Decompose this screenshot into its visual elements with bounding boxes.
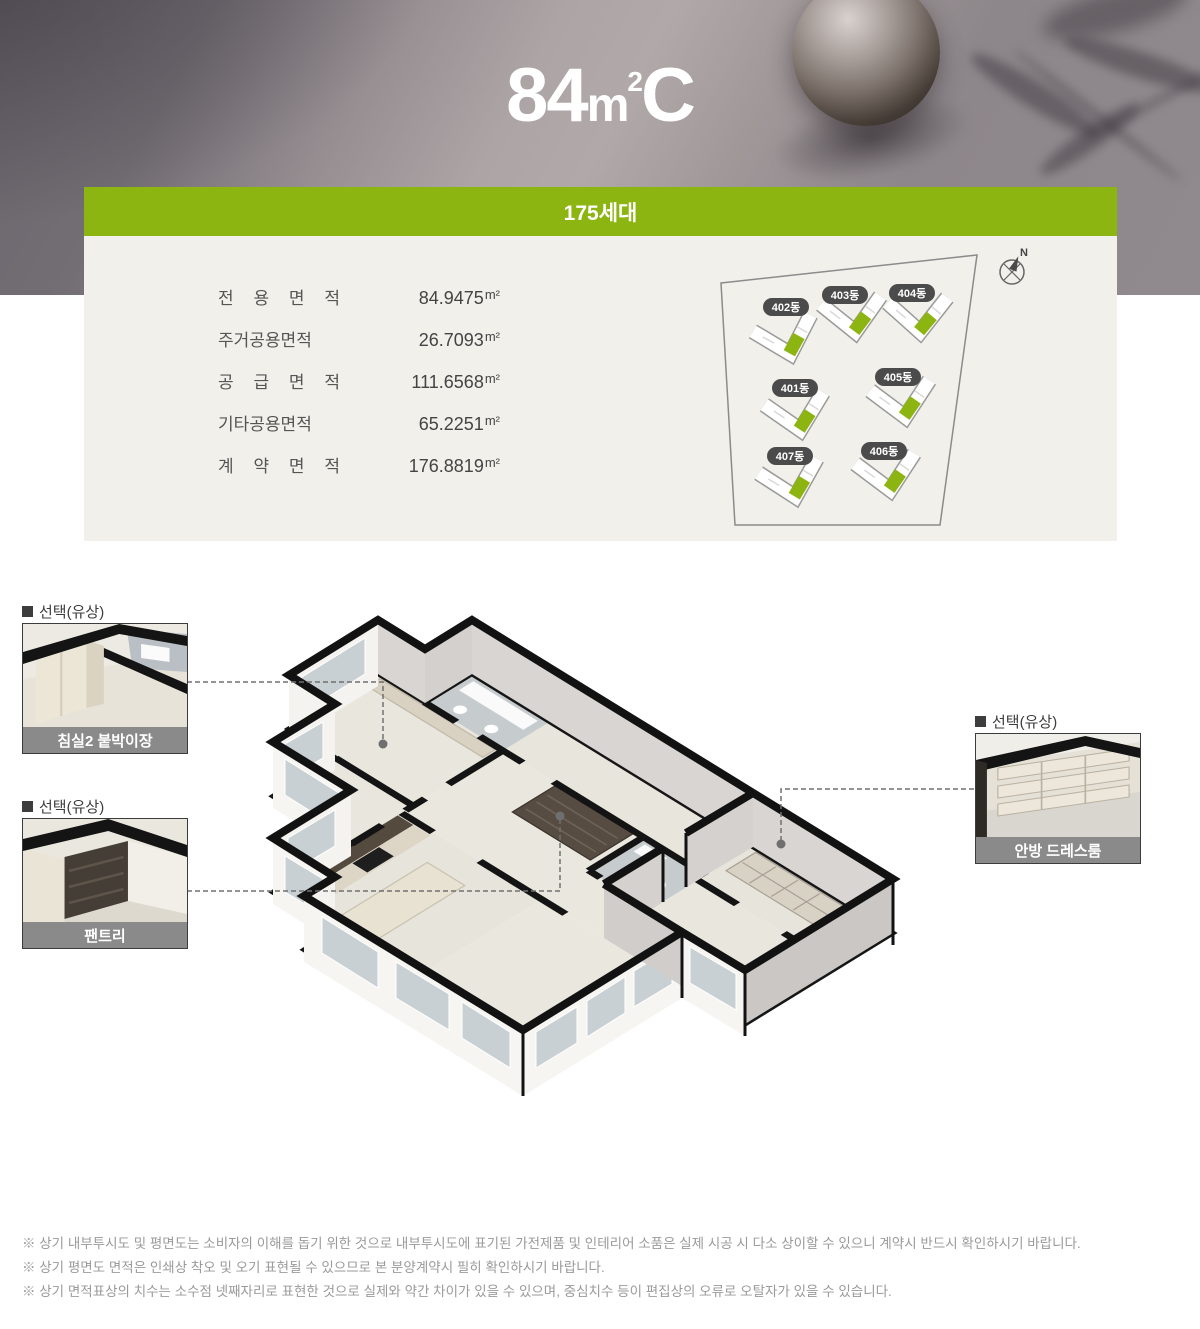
area-row: 기타공용면적 65.2251m²: [218, 410, 500, 452]
building-402: [753, 315, 819, 362]
note-line: ※ 상기 면적표상의 치수는 소수점 넷째자리로 표현한 것으로 실제와 약간 …: [22, 1280, 1182, 1304]
bullet-square-icon: [975, 716, 986, 727]
callout-image: 팬트리: [22, 818, 188, 949]
area-value: 111.6568m²: [340, 371, 500, 393]
dressroom-shelving: [726, 852, 884, 949]
area-unit: m²: [485, 371, 500, 386]
wall-top-bands: [273, 620, 893, 1030]
title-unit: m: [587, 79, 628, 132]
svg-text:404동: 404동: [898, 287, 926, 300]
option-tag: 선택(유상): [975, 711, 1141, 731]
svg-text:402동: 402동: [772, 301, 800, 314]
area-unit: m²: [485, 287, 500, 302]
pantry-shelving: [512, 785, 634, 860]
callout-caption: 팬트리: [23, 922, 187, 948]
footer-notes: ※ 상기 내부투시도 및 평면도는 소비자의 이해를 돕기 위한 것으로 내부투…: [22, 1232, 1182, 1304]
callout-caption: 침실2 붙박이장: [23, 727, 187, 753]
bedroom2-builtin-closet: [367, 679, 495, 758]
building-label-407: 407동: [767, 447, 813, 465]
pantry-render: [23, 819, 187, 922]
svg-text:406동: 406동: [870, 445, 898, 458]
callout-master-dressroom: 선택(유상) 안방 드레스룸: [975, 711, 1141, 864]
building-label-403: 403동: [822, 286, 868, 304]
brochure-page: 84m2C 175세대 전 용 면 적 84.9475m² 주거공용면적 26.…: [0, 0, 1200, 1329]
svg-text:405동: 405동: [884, 371, 912, 384]
area-value: 176.8819m²: [340, 455, 500, 477]
callout-bedroom2-closet: 선택(유상) 침실2 붙박이장: [22, 601, 188, 754]
option-tag: 선택(유상): [22, 601, 188, 621]
building-label-405: 405동: [875, 368, 921, 386]
households-banner: 175세대: [84, 187, 1117, 236]
callout-line-pantry: [187, 820, 560, 891]
area-row: 전 용 면 적 84.9475m²: [218, 284, 500, 326]
interior-walls: [273, 703, 846, 1056]
leaf-shadow: [1037, 0, 1193, 51]
area-value: 84.9475m²: [340, 287, 500, 309]
kitchen-counter: [277, 815, 431, 910]
callout-dot-bedroom2: [379, 740, 388, 749]
option-tag: 선택(유상): [22, 796, 188, 816]
area-value: 26.7093m²: [340, 329, 500, 351]
building-404: [887, 297, 950, 334]
area-label: 계 약 면 적: [218, 452, 340, 477]
site-map: N 402동 403동 404동 401동 405동 407동 406동: [705, 248, 1050, 536]
title-number: 84: [506, 53, 587, 138]
area-table: 전 용 면 적 84.9475m² 주거공용면적 26.7093m² 공 급 면…: [218, 284, 500, 494]
callout-dot-pantry: [556, 812, 565, 821]
floor-plan-floors: [117, 645, 893, 1123]
unit-type-title: 84m2C: [0, 58, 1200, 134]
callout-caption: 안방 드레스룸: [976, 837, 1140, 863]
area-unit: m²: [485, 413, 500, 428]
building-405: [870, 380, 935, 422]
area-unit: m²: [485, 329, 500, 344]
building-407: [759, 459, 825, 505]
bathroom-fixtures: [395, 681, 738, 892]
svg-text:401동: 401동: [781, 382, 809, 395]
area-row: 주거공용면적 26.7093m²: [218, 326, 500, 368]
area-label: 주거공용면적: [218, 326, 340, 351]
callout-line-dressroom: [781, 789, 974, 840]
dressroom-render: [976, 734, 1140, 837]
option-tag-label: 선택(유상): [992, 711, 1057, 732]
note-line: ※ 상기 평면도 면적은 인쇄상 착오 및 오기 표현될 수 있으므로 본 분양…: [22, 1256, 1182, 1280]
callout-line-bedroom2: [187, 682, 383, 740]
callout-image: 안방 드레스룸: [975, 733, 1141, 864]
building-401: [764, 392, 829, 436]
building-label-406: 406동: [861, 442, 907, 460]
compass-icon: N: [1000, 248, 1028, 284]
option-tag-label: 선택(유상): [39, 601, 104, 622]
building-label-401: 401동: [772, 379, 818, 397]
area-value: 65.2251m²: [340, 413, 500, 435]
note-line: ※ 상기 내부투시도 및 평면도는 소비자의 이해를 돕기 위한 것으로 내부투…: [22, 1232, 1182, 1256]
building-label-402: 402동: [763, 298, 809, 316]
bullet-square-icon: [22, 801, 33, 812]
wall-corner-edges: [523, 833, 893, 1096]
title-superscript: 2: [627, 66, 641, 97]
standing-walls: [273, 620, 893, 1096]
area-row: 계 약 면 적 176.8819m²: [218, 452, 500, 494]
area-label: 공 급 면 적: [218, 368, 340, 393]
compass-label: N: [1020, 248, 1028, 259]
exterior-wall-base: [117, 645, 893, 1123]
closet-render: [23, 624, 187, 727]
callout-lines: [187, 682, 974, 891]
area-unit: m²: [485, 455, 500, 470]
kitchen-island: [342, 862, 465, 938]
option-tag-label: 선택(유상): [39, 796, 104, 817]
title-suffix: C: [641, 53, 694, 138]
area-label: 기타공용면적: [218, 410, 340, 435]
area-label: 전 용 면 적: [218, 284, 340, 309]
callout-pantry: 선택(유상) 팬트리: [22, 796, 188, 949]
callout-image: 침실2 붙박이장: [22, 623, 188, 754]
households-count: 175세대: [564, 197, 638, 227]
svg-text:403동: 403동: [831, 289, 859, 302]
bullet-square-icon: [22, 606, 33, 617]
building-label-404: 404동: [889, 284, 935, 302]
area-row: 공 급 면 적 111.6568m²: [218, 368, 500, 410]
callout-dot-dressroom: [777, 840, 786, 849]
svg-text:407동: 407동: [776, 450, 804, 463]
